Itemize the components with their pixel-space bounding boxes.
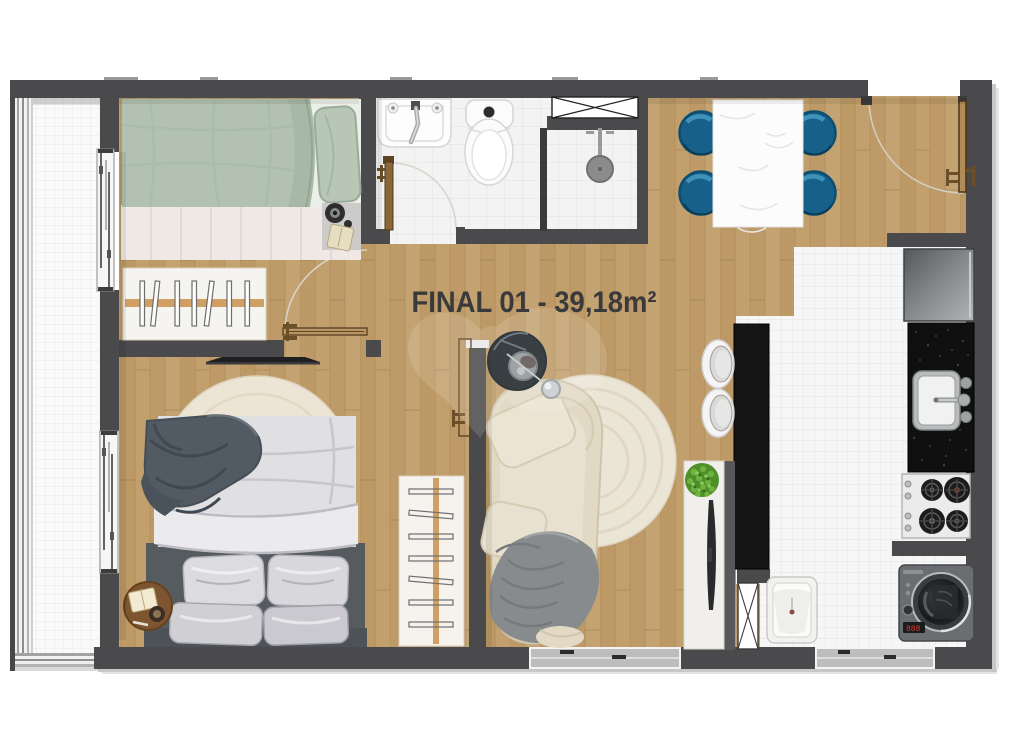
svg-text:FINAL 01 - 39,18m²: FINAL 01 - 39,18m² (412, 286, 657, 319)
svg-text:888: 888 (906, 625, 921, 634)
